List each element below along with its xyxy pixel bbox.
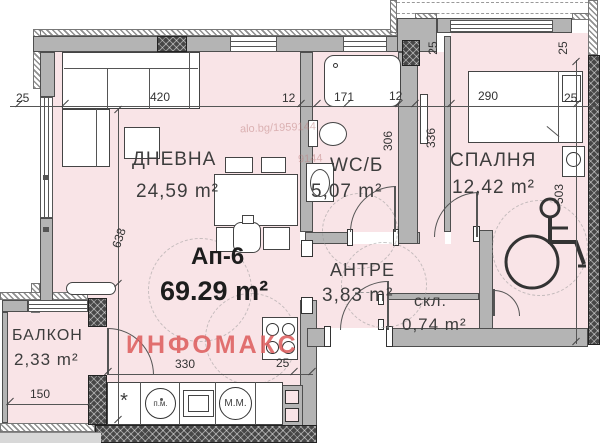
dim-top-420: 420 [150, 90, 170, 104]
window-line [450, 28, 553, 29]
wall-top-left-corner [40, 52, 55, 97]
wall-wc-corridor [398, 52, 418, 244]
window-mullion [43, 227, 49, 232]
shaft [285, 390, 299, 404]
bed-line [558, 71, 559, 143]
dim-top-right-25: 25 [564, 91, 577, 105]
terrace-dash-line [397, 2, 588, 3]
dim-top-171: 171 [334, 90, 354, 104]
window-line [343, 41, 387, 42]
wall-kitchen-south [95, 425, 317, 443]
label-living-name: ДНЕВНА [132, 149, 216, 171]
appliance-star: * [112, 390, 136, 418]
pillar-top-wall [157, 36, 187, 52]
wall-east [588, 55, 600, 345]
label-storage-name: скл. [414, 293, 447, 311]
label-hall-area: 3,83 m² [322, 285, 393, 307]
listing-watermark-fragment: 9144 [298, 153, 323, 166]
label-bedroom-name: СПАЛНЯ [450, 150, 536, 172]
dim-top-12-a: 12 [282, 91, 295, 105]
pillar-balcony-a [88, 298, 107, 327]
nightstand-lamp [566, 152, 581, 167]
dim-line-left [118, 108, 119, 424]
window-line [28, 308, 88, 309]
dining-table [214, 174, 298, 226]
window-wc-top [343, 36, 387, 52]
window-line [230, 41, 277, 42]
dim-top-left-25: 25 [16, 91, 29, 105]
dim-corridor-336: 336 [424, 123, 438, 153]
radiator [66, 282, 116, 295]
label-hall-name: АНТРЕ [330, 260, 395, 281]
washing-machine-dot [160, 398, 163, 401]
sofa-chaise [62, 109, 110, 167]
doorframe-passage [301, 240, 313, 257]
dim-bedroom-503: 503 [552, 179, 566, 209]
brand-watermark: ИНФОМАКС [126, 331, 299, 360]
counter-line [140, 382, 141, 425]
kitchen-sink-basin [188, 395, 209, 412]
window-line [44, 97, 45, 218]
chair [225, 157, 253, 173]
label-wc-area: 5,07 m² [311, 181, 382, 203]
insulation-top [33, 29, 420, 36]
insulation-balcony-bottom [0, 423, 95, 432]
sofa [62, 52, 200, 109]
label-storage-area: 0,74 m² [402, 315, 467, 335]
counter-line [255, 382, 256, 425]
dim-line-top [10, 106, 598, 107]
armchair-back [242, 215, 254, 224]
floor-plan: * п.м. М.М. 25 4 [0, 0, 604, 443]
window-bedroom [450, 20, 553, 32]
window-balcony [28, 300, 88, 312]
counter-line [179, 382, 180, 425]
dim-balcony-150: 150 [30, 387, 50, 401]
wheelchair-icon [502, 196, 586, 294]
wall-balcony-left [2, 312, 8, 423]
dim-bed-left-25: 25 [426, 33, 440, 63]
label-balcony-name: БАЛКОН [12, 327, 83, 345]
window-line [343, 46, 387, 47]
washing-machine: п.м. [145, 388, 176, 419]
wall-balcony-top [2, 300, 28, 312]
label-wc-name: WC/Б [330, 155, 383, 177]
dim-bed-right-25: 25 [556, 33, 570, 63]
shaft [285, 408, 299, 422]
insulation-terrace-left [390, 0, 397, 33]
window-line [230, 46, 277, 47]
label-bedroom-area: 12,42 m² [452, 177, 535, 199]
window-mullion [43, 175, 49, 180]
counter-line [215, 382, 216, 425]
dishwasher: М.М. [219, 387, 252, 420]
dim-line-balcony [8, 404, 92, 405]
insulation-terrace-right [588, 0, 598, 55]
doorframe-passage [301, 297, 313, 314]
sofa-line [107, 68, 108, 109]
sofa-line [96, 109, 97, 167]
bathtub-drain [333, 63, 338, 68]
dim-line-kitchen [107, 374, 313, 375]
toilet-bowl [319, 122, 347, 146]
apartment-total-area: 69.29 m² [160, 276, 268, 307]
wall-hall-bedroom-divider [479, 230, 493, 330]
window-line [28, 304, 88, 305]
window-line [450, 24, 553, 25]
dim-top-290: 290 [478, 89, 498, 103]
window-living-top [230, 36, 277, 52]
dim-top-12-b: 12 [389, 89, 402, 103]
window-line [48, 97, 49, 218]
doorframe-entry [324, 326, 331, 347]
chair [263, 227, 290, 250]
pillar-junction [402, 40, 420, 66]
apartment-id: Ап-6 [191, 243, 244, 271]
ground-strip [0, 432, 101, 443]
label-living-area: 24,59 m² [136, 181, 219, 203]
sofa-line [189, 52, 190, 109]
chair [261, 157, 286, 173]
sofa-line [64, 68, 198, 69]
dim-wc-306: 306 [381, 126, 395, 156]
label-balcony-area: 2,33 m² [14, 350, 79, 370]
window-living-left [40, 97, 53, 218]
